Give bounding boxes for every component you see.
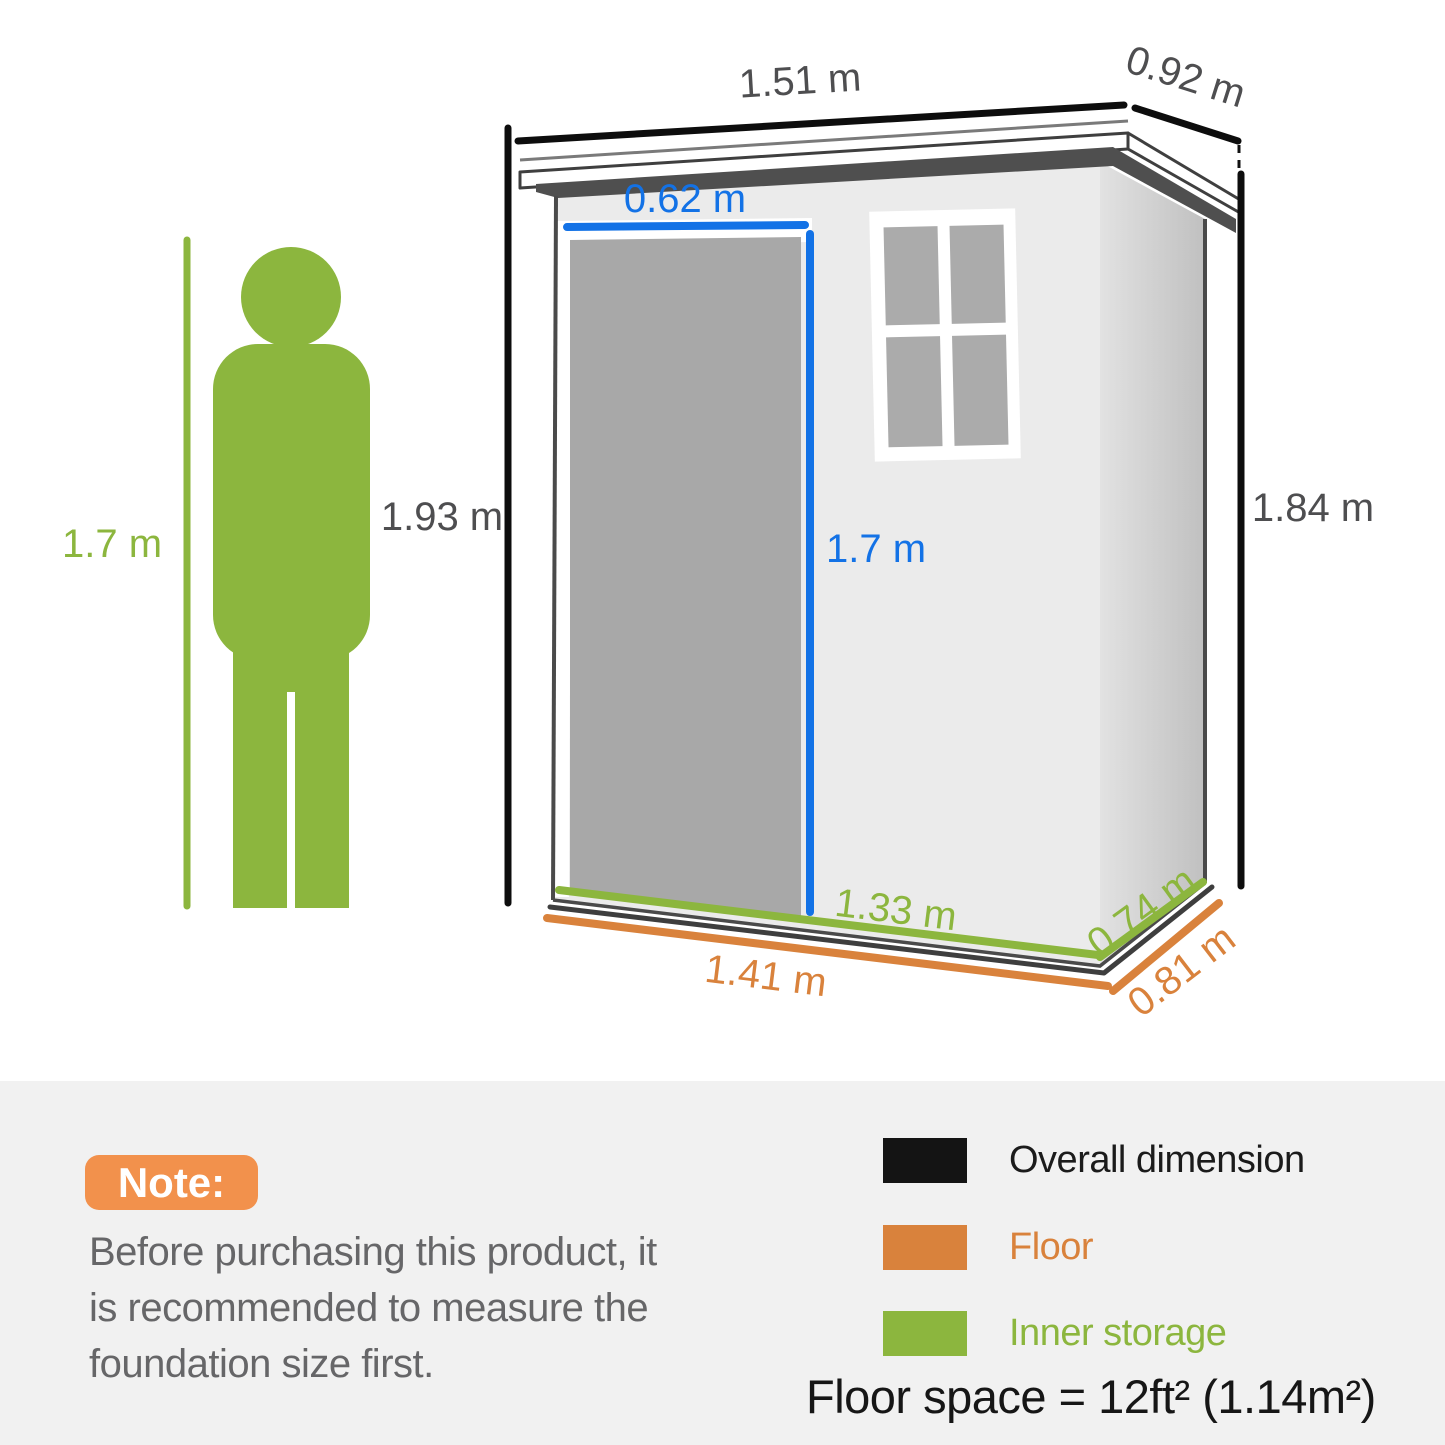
legend-row-inner-storage: Inner storage bbox=[883, 1311, 1226, 1356]
legend-label-overall-dimension: Overall dimension bbox=[1009, 1139, 1305, 1182]
note-badge-label: Note: bbox=[118, 1159, 225, 1207]
label-height-front: 1.93 m bbox=[381, 495, 503, 539]
window-pane bbox=[886, 336, 942, 447]
dim-line-door-width bbox=[567, 225, 805, 227]
human-figure bbox=[213, 247, 370, 908]
note-badge: Note: bbox=[85, 1155, 258, 1210]
note-text: Before purchasing this product, it is re… bbox=[89, 1224, 789, 1392]
legend-swatch-overall-dimension bbox=[883, 1138, 967, 1183]
label-overall-width: 1.51 m bbox=[738, 55, 863, 106]
note-line: foundation size first. bbox=[89, 1336, 789, 1392]
figure-height-label: 1.7 m bbox=[62, 522, 162, 566]
figure-leg-gap bbox=[287, 692, 295, 908]
label-door-width: 0.62 m bbox=[624, 177, 746, 221]
window-pane bbox=[884, 226, 940, 325]
legend-row-overall-dimension: Overall dimension bbox=[883, 1138, 1305, 1183]
shed-window bbox=[869, 208, 1021, 461]
note-line: Before purchasing this product, it bbox=[89, 1224, 789, 1280]
shed-dimension-diagram: 1.7 m bbox=[0, 0, 1445, 1081]
legend-label-inner-storage: Inner storage bbox=[1009, 1312, 1226, 1355]
legend-swatch-inner-storage bbox=[883, 1311, 967, 1356]
shed-door bbox=[570, 237, 801, 920]
note-line: is recommended to measure the bbox=[89, 1280, 789, 1336]
label-height-back: 1.84 m bbox=[1252, 486, 1374, 530]
window-pane bbox=[952, 335, 1008, 446]
info-panel: Note: Before purchasing this product, it… bbox=[0, 1081, 1445, 1445]
window-pane bbox=[950, 225, 1006, 324]
label-overall-depth: 0.92 m bbox=[1121, 38, 1251, 117]
label-door-height: 1.7 m bbox=[826, 527, 926, 571]
label-floor-width: 1.41 m bbox=[703, 947, 830, 1006]
infographic-canvas: 1.7 m bbox=[0, 0, 1445, 1445]
dim-line-overall-depth bbox=[1135, 108, 1238, 141]
floor-space-summary: Floor space = 12ft² (1.14m²) bbox=[806, 1369, 1376, 1424]
legend-swatch-floor bbox=[883, 1225, 967, 1270]
figure-head bbox=[241, 247, 341, 347]
legend-label-floor: Floor bbox=[1009, 1226, 1093, 1269]
figure-torso bbox=[213, 344, 370, 660]
shed-side-wall bbox=[1100, 162, 1205, 966]
legend-row-floor: Floor bbox=[883, 1225, 1093, 1270]
